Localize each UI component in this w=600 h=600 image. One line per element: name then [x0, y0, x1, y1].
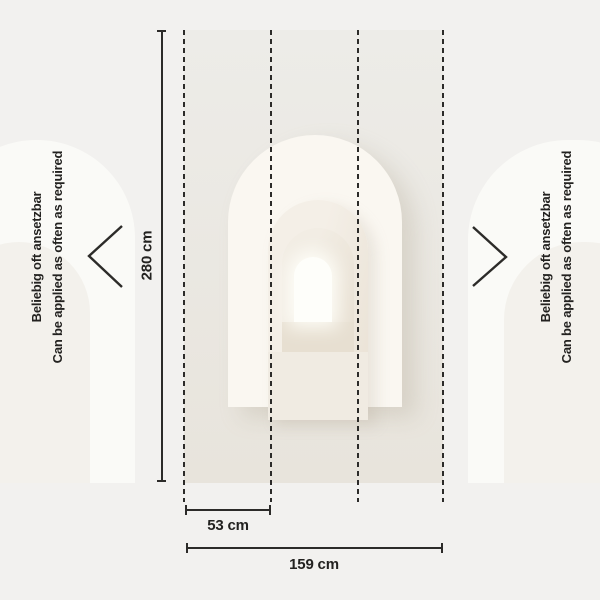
repeat-note-english: Can be applied as often as required: [556, 57, 577, 457]
chevron-right-icon: [473, 227, 506, 286]
product-dimension-diagram: 280 cm 53 cm 159 cm Beliebig oft ansetzb…: [0, 0, 600, 600]
repeat-note-left: Beliebig oft ansetzbar Can be applied as…: [26, 57, 68, 457]
repeat-note-german: Beliebig oft ansetzbar: [26, 57, 47, 457]
repeat-note-english: Can be applied as often as required: [47, 57, 68, 457]
repeat-chevrons: [0, 0, 600, 600]
repeat-note-german: Beliebig oft ansetzbar: [535, 57, 556, 457]
repeat-note-right: Beliebig oft ansetzbar Can be applied as…: [535, 57, 577, 457]
chevron-left-icon: [89, 226, 122, 287]
